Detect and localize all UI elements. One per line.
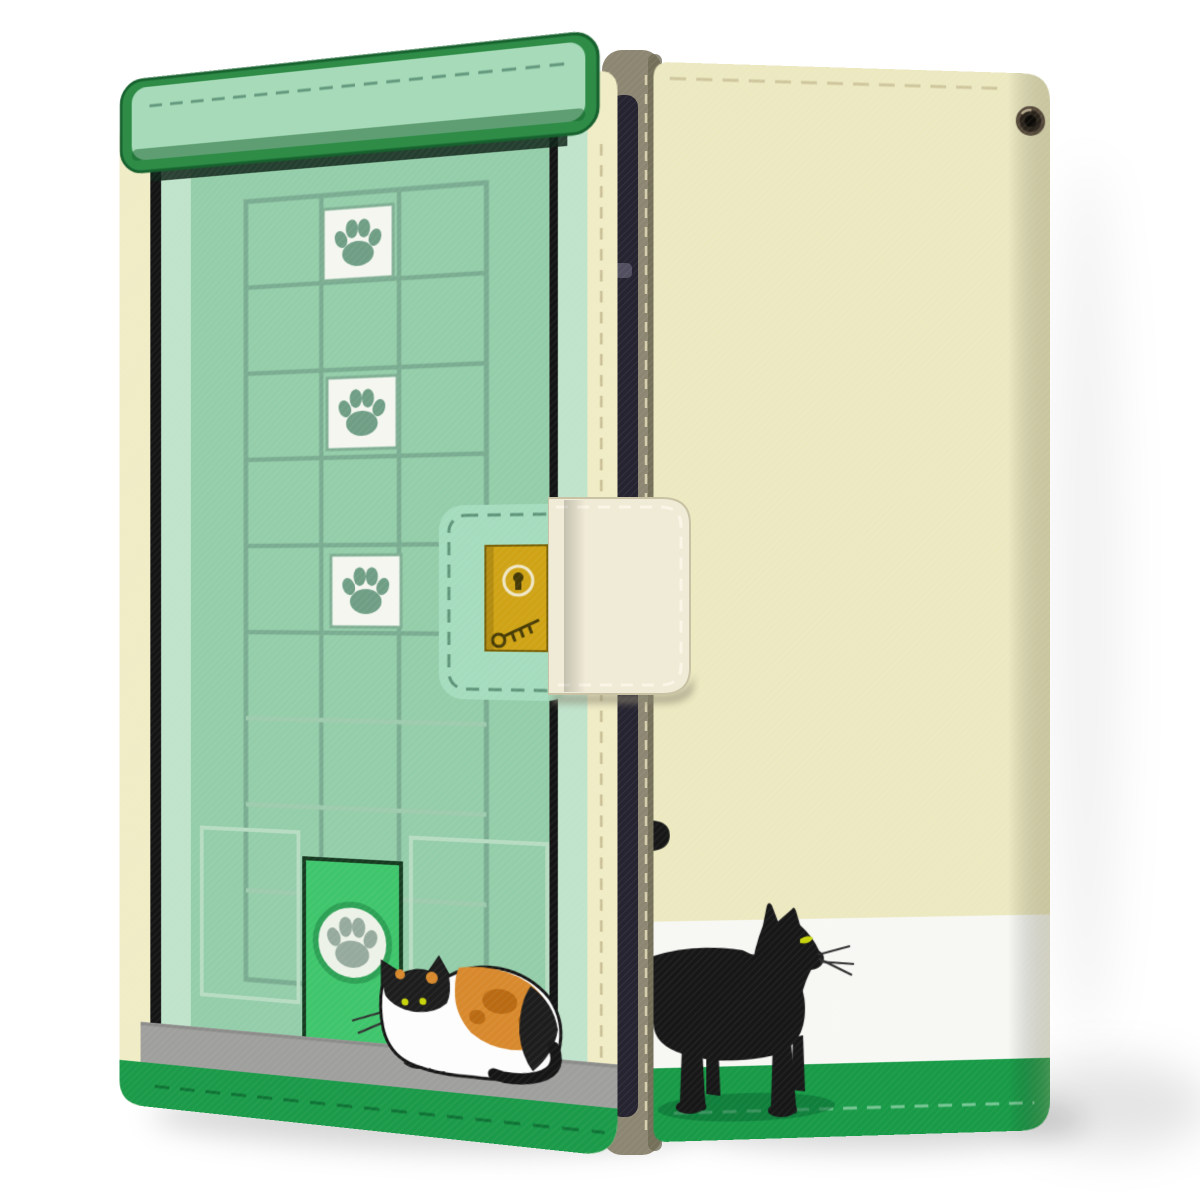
product-photo	[0, 0, 1200, 1200]
leather-texture	[119, 69, 617, 1157]
strap-fold-shading	[564, 500, 586, 692]
magnetic-clasp-strap	[548, 492, 700, 712]
back-cover	[653, 62, 1050, 1142]
front-cover-graphic	[119, 27, 617, 1157]
side-shadow	[1052, 160, 1122, 1040]
back-cover-graphic	[653, 62, 1050, 1142]
strap-graphic	[548, 492, 700, 712]
leather-texture	[653, 62, 1050, 1142]
front-cover	[119, 27, 617, 1157]
